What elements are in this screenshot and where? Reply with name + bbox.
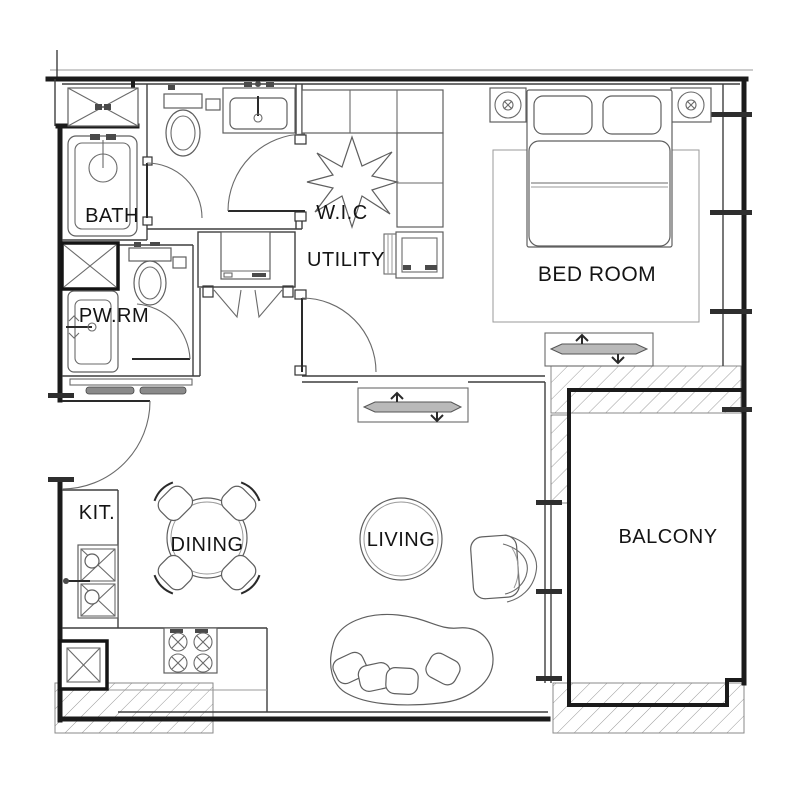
- washer-control: [252, 273, 266, 277]
- wic-label: W.I.C: [316, 202, 367, 224]
- slide-arrow-icon: [431, 412, 443, 421]
- shower-stall: [66, 291, 118, 372]
- slide-arrow-icon: [391, 393, 403, 402]
- valve-icon: [150, 242, 160, 246]
- bath-label: BATH: [85, 205, 139, 227]
- window-mullion-tick: [710, 210, 752, 215]
- door-jamb-tick: [48, 393, 74, 398]
- wc-door: [228, 134, 305, 211]
- stove-control: [170, 629, 183, 633]
- paper-holder: [173, 257, 186, 268]
- bath-door: [147, 163, 202, 218]
- bifold-leaf: [214, 290, 241, 317]
- valve-icon: [168, 85, 175, 90]
- bifold-leaf: [255, 290, 282, 317]
- shelf-outline: [70, 379, 192, 385]
- bedroom: [490, 88, 711, 322]
- stove-control: [195, 629, 208, 633]
- door-jamb-post: [295, 366, 306, 375]
- door-jamb-post: [295, 135, 306, 144]
- sofa-pillow: [385, 667, 418, 695]
- faucet-handle-icon: [244, 82, 252, 87]
- toilet: [129, 242, 186, 305]
- drawer-handle: [425, 265, 437, 270]
- entry-door: [62, 401, 150, 489]
- shelf-item: [140, 387, 186, 394]
- toilet-room: [164, 81, 295, 156]
- door-jamb-post: [295, 212, 306, 221]
- door-jamb-tick: [48, 477, 74, 482]
- stove: [164, 628, 217, 673]
- window-mullion-tick: [536, 589, 562, 594]
- faucet-handle-icon: [106, 134, 116, 140]
- door-arc: [302, 298, 376, 372]
- sliding-window-panel: [551, 344, 647, 354]
- paper-holder: [206, 99, 220, 110]
- bedroom-label: BED ROOM: [538, 263, 656, 286]
- valve-icon: [134, 242, 141, 247]
- door-arc: [62, 401, 150, 489]
- window-mullion-tick: [536, 500, 562, 505]
- door-jamb-post: [143, 217, 152, 225]
- floor-drain-box: [60, 641, 107, 689]
- hatched-wall: [553, 683, 744, 733]
- window-mullion-tick: [710, 112, 752, 117]
- sink-drain: [85, 554, 99, 568]
- armchair: [470, 534, 537, 602]
- wardrobe-column: [397, 133, 443, 227]
- entry-shelf: [70, 379, 192, 394]
- shaft-box: [62, 243, 118, 289]
- door-arc: [228, 134, 305, 211]
- toilet-tank: [164, 94, 202, 108]
- door-arc: [147, 163, 202, 218]
- faucet-handle-icon: [266, 82, 274, 87]
- wash-basin: [223, 81, 295, 133]
- sliding-door-panel: [364, 402, 461, 412]
- hanging-rail: [384, 234, 396, 274]
- powder-room-label: PW.RM: [79, 305, 149, 327]
- pillow: [603, 96, 661, 134]
- washing-machine: [198, 232, 295, 287]
- kitchen-label: KIT.: [79, 502, 115, 524]
- shelf-item: [86, 387, 134, 394]
- faucet-handle-icon: [90, 134, 100, 140]
- faucet-spout-icon: [255, 81, 261, 87]
- nightstand-right: [671, 88, 711, 122]
- slide-arrow-icon: [612, 354, 624, 363]
- sofa: [330, 614, 493, 704]
- bifold-door: [203, 286, 293, 317]
- shower-valve-icon: [104, 104, 111, 110]
- dining-label: DINING: [171, 534, 244, 556]
- kitchen-sink: [63, 545, 118, 618]
- sliding-window: [545, 333, 653, 366]
- utility-label: UTILITY: [307, 249, 385, 271]
- balcony-label: BALCONY: [618, 526, 717, 548]
- sink-drain: [85, 590, 99, 604]
- slide-arrow-icon: [576, 335, 588, 344]
- living-label: LIVING: [367, 529, 436, 551]
- drawer-handle: [403, 265, 411, 270]
- drawer-unit: [396, 232, 443, 278]
- washer-outline: [221, 232, 270, 279]
- bedroom-hall-door: [302, 298, 376, 372]
- window-mullion-tick: [536, 676, 562, 681]
- pillow: [534, 96, 592, 134]
- blanket: [529, 141, 670, 246]
- armchair-seat: [470, 534, 520, 599]
- shower-valve-icon: [95, 104, 102, 110]
- floor-plan-canvas: BATH PW.RM W.I.C UTILITY BED ROOM KIT. D…: [0, 0, 800, 800]
- hatched-wall: [551, 415, 569, 503]
- window-mullion-tick: [710, 309, 752, 314]
- toilet-tank: [129, 248, 171, 261]
- sliding-door: [358, 388, 468, 422]
- wardrobe-run: [302, 90, 443, 133]
- nightstand-left: [490, 88, 526, 122]
- shower-tray: [68, 88, 138, 126]
- window-mullion-tick: [722, 407, 752, 412]
- bed: [527, 90, 672, 247]
- floor-plan: BATH PW.RM W.I.C UTILITY BED ROOM KIT. D…: [0, 0, 800, 800]
- faucet-knob-icon: [63, 578, 69, 584]
- toilet: [164, 85, 220, 156]
